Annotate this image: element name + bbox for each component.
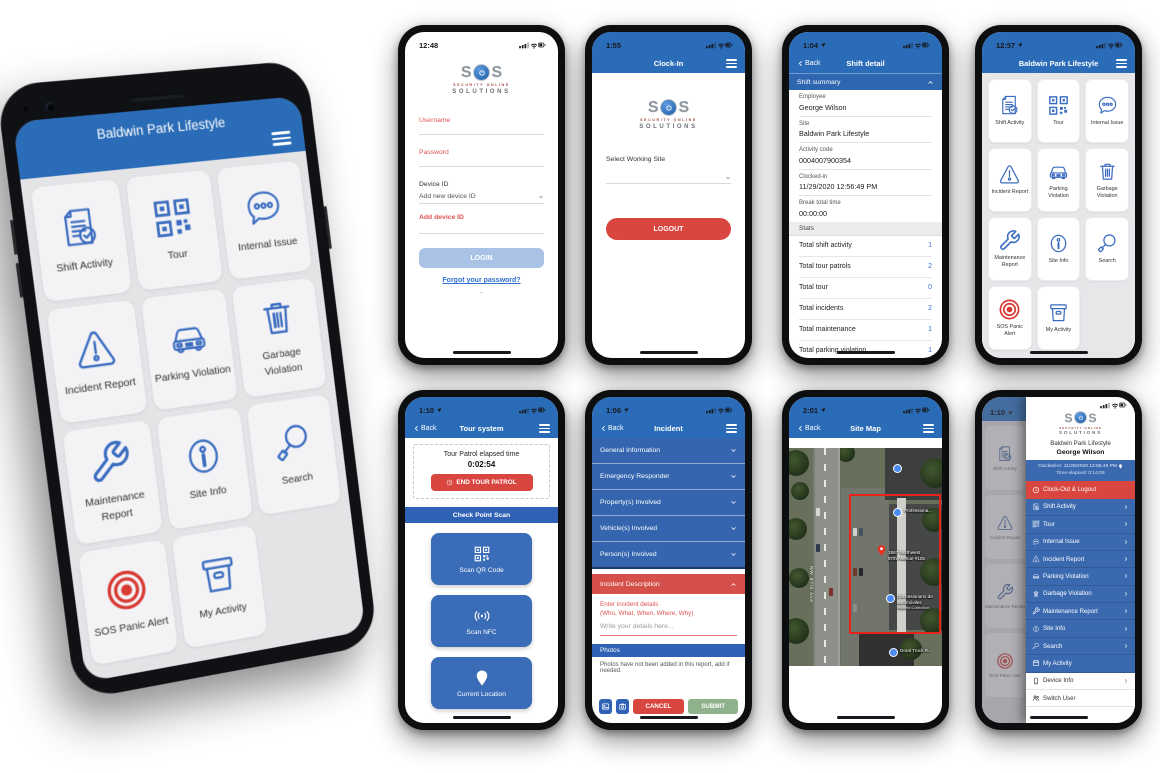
cancel-button[interactable]: CANCEL (633, 699, 685, 714)
section-label: Emergency Responder (600, 473, 670, 480)
chevron-down-icon (730, 473, 737, 480)
hero-phone-mockup: Baldwin Park Lifestyle Shift Activity To… (0, 60, 378, 701)
status-time: 12:57 (996, 41, 1023, 50)
nav-bar: Back Site Map (789, 419, 942, 438)
chevron-right-icon (1123, 608, 1129, 614)
status-time: 1:55 (606, 41, 621, 50)
panic-target-icon (102, 565, 151, 616)
menu-screen: 12:57 Baldwin Park Lifestyle Shift Activ… (982, 32, 1135, 358)
stat-row: Total tour patrols 2 (799, 257, 932, 278)
tour-phone-mockup: 1:10 Back Tour system Tour Patrol elapse… (398, 390, 565, 730)
poi-concesionario[interactable]: Concesionario de automóviles Imports Col… (886, 594, 942, 611)
status-icons (1100, 401, 1127, 409)
incident-accordion: General Information Emergency Responder … (592, 438, 745, 569)
status-time: 1:04 (803, 41, 826, 50)
password-field[interactable]: Password (419, 149, 544, 167)
drawer-item-site-info[interactable]: Site Info (1026, 620, 1135, 637)
incident-prompt: (Who, What, When, Where, Why) (600, 609, 737, 618)
home-indicator[interactable] (453, 716, 511, 720)
panic-target-icon (998, 298, 1021, 321)
chevron-right-icon (1123, 539, 1129, 545)
stat-label: Total tour (799, 284, 828, 291)
chevron-left-icon (797, 60, 804, 67)
power-button (324, 206, 332, 249)
field-label: Break total time (799, 200, 932, 206)
map-marker[interactable] (893, 464, 902, 473)
poi-label: Doral Truck R... (900, 648, 932, 654)
page-title: Baldwin Park Lifestyle (982, 59, 1135, 68)
poi-label: Professiona... (904, 508, 932, 514)
logo-tagline: SOLUTIONS (452, 89, 510, 95)
location-arrow-icon (820, 42, 826, 48)
back-button[interactable]: Back (600, 425, 624, 432)
chevron-right-icon (1123, 591, 1129, 597)
home-indicator[interactable] (1030, 716, 1088, 720)
logo-tagline: SOLUTIONS (639, 124, 697, 130)
menu-item-label: My Activity (195, 599, 252, 624)
trash-can-icon (254, 294, 301, 342)
field-value: Baldwin Park Lifestyle (799, 129, 932, 143)
logo-letter: S (1064, 412, 1072, 424)
drawer-item-search[interactable]: Search (1026, 638, 1135, 655)
drawer-item-device-info[interactable]: Device Info (1026, 673, 1135, 690)
drawer-item-parking-violation[interactable]: Parking Violation (1026, 568, 1135, 585)
page-canvas: Baldwin Park Lifestyle Shift Activity To… (0, 0, 1160, 773)
device-id-select[interactable]: Device ID Add new device ID (419, 181, 544, 204)
status-bar: 12:57 (982, 32, 1135, 54)
drawer-item-label: My Activity (1043, 660, 1072, 667)
current-location-label: Current Location (457, 691, 506, 698)
sitemap-phone-mockup: 2:01 Back Site Map (782, 390, 949, 730)
field-employee: Employee George Wilson (789, 90, 942, 117)
menu-item-maintenance-report[interactable]: Maintenance Report (62, 420, 162, 545)
poi-sublabel: Imports Collection (897, 605, 929, 610)
sos-logo: S S SECURITY ONLINE SOLUTIONS (592, 99, 745, 130)
stat-row: Total incidents 2 (799, 299, 932, 320)
magnifier-icon (270, 418, 316, 467)
section-label: Person(s) Involved (600, 551, 657, 558)
elapsed-label: Tour Patrol elapsed time (420, 451, 543, 458)
front-camera-icon (45, 102, 55, 112)
menu-item-label: Tour (163, 246, 192, 265)
chevron-left-icon (600, 425, 607, 432)
poi-marker-icon (889, 648, 898, 657)
trash-can-icon (1032, 590, 1040, 598)
chevron-up-icon (730, 581, 737, 588)
volume-button (16, 263, 24, 298)
menu-phone-mockup: 12:57 Baldwin Park Lifestyle Shift Activ… (975, 25, 1142, 365)
menu-item-label: Shift Activity (52, 255, 118, 278)
red-map-pin-icon (875, 544, 888, 557)
tour-elapsed-card: Tour Patrol elapsed time 0:02:54 END TOU… (413, 444, 550, 499)
menu-item-label: Tour (1051, 120, 1066, 127)
page-title: Clock-In (592, 59, 745, 68)
hamburger-menu-icon[interactable] (539, 424, 550, 432)
drawer-item-tour[interactable]: Tour (1026, 516, 1135, 533)
drawer-item-label: Garbage Violation (1043, 590, 1092, 597)
chevron-right-icon (1123, 573, 1129, 579)
menu-item-maintenance-report[interactable]: Maintenance Report (988, 217, 1032, 281)
field-value: 00:00:00 (799, 209, 932, 222)
menu-item-my-activity[interactable]: My Activity (171, 524, 268, 648)
section-label: General Information (600, 447, 660, 454)
stat-label: Total tour patrols (799, 263, 851, 270)
menu-item-my-activity[interactable]: My Activity (1037, 286, 1081, 350)
status-icons (706, 406, 733, 414)
qr-code-icon (473, 545, 491, 563)
drawer-item-my-activity[interactable]: My Activity (1026, 655, 1135, 672)
field-activity-code: Activity code 0004007900354 (789, 143, 942, 170)
details-textarea[interactable]: Write your details here... (600, 623, 737, 636)
menu-item-site-info[interactable]: Site Info (156, 407, 253, 530)
status-bar: 2:01 (789, 397, 942, 419)
checkpoint-scan-header: Check Point Scan (405, 507, 558, 523)
clock-out-logout-button[interactable]: Clock-Out & Logout (1026, 481, 1135, 499)
menu-item-label: Site Info (1047, 258, 1071, 265)
section-general-information[interactable]: General Information (592, 438, 745, 464)
menu-item-sos-panic-alert[interactable]: SOS Panic Alert (988, 286, 1032, 350)
hamburger-menu-icon[interactable] (726, 59, 737, 67)
menu-item-label: Shift Activity (993, 120, 1026, 127)
logout-button[interactable]: LOGOUT (606, 218, 731, 240)
car-icon (1032, 572, 1040, 580)
menu-item-tour[interactable]: Tour (1037, 79, 1081, 143)
chevron-left-icon (797, 425, 804, 432)
menu-item-label: Site Info (185, 482, 232, 504)
drawer-header: S S SECURITY ONLINE SOLUTIONS Baldwin Pa… (1026, 411, 1135, 456)
menu-item-shift-activity[interactable]: Shift Activity (988, 79, 1032, 143)
section-label: Vehicle(s) Involved (600, 525, 657, 532)
shift-detail-screen: 1:04 Back Shift detail Shift summary Emp… (789, 32, 942, 358)
chevron-right-icon (1123, 678, 1129, 684)
elapsed-time: 0:02:54 (420, 460, 543, 469)
menu-grid: Shift Activity Tour Internal Issue Incid… (20, 151, 365, 676)
menu-item-label: SOS Panic Alert (989, 324, 1031, 339)
menu-item-sos-panic-alert[interactable]: SOS Panic Alert (78, 539, 178, 665)
site-address: 1867 Northwest 97th Avenue #105 (888, 550, 925, 561)
stat-row: Total maintenance 1 (799, 320, 932, 341)
clocked-in-banner: Clocked-in: 11/29/2020 12:56:49 PM Time … (1026, 460, 1135, 481)
info-icon (1047, 232, 1070, 255)
scrim-overlay[interactable] (982, 397, 1028, 723)
device-id-label: Device ID (419, 181, 544, 188)
section-emergency-responder[interactable]: Emergency Responder (592, 464, 745, 490)
back-label: Back (805, 425, 821, 432)
end-tour-patrol-button[interactable]: END TOUR PATROL (431, 474, 533, 491)
back-label: Back (608, 425, 624, 432)
chevron-right-icon (1123, 556, 1129, 562)
calendar-icon (1032, 659, 1040, 667)
field-break-total: Break total time 00:00:00 (789, 196, 942, 222)
menu-item-label: Search (277, 469, 317, 490)
submit-button[interactable]: SUBMIT (688, 699, 738, 714)
status-time: 2:01 (803, 406, 826, 415)
nav-bar: Back Shift detail (789, 54, 942, 73)
chevron-right-icon (1123, 521, 1129, 527)
camera-button[interactable] (616, 699, 629, 714)
document-icon (1032, 503, 1040, 511)
gallery-button[interactable] (599, 699, 612, 714)
back-button[interactable]: Back (797, 425, 821, 432)
warning-triangle-icon (1032, 555, 1040, 563)
address-line: 1867 Northwest (888, 550, 920, 555)
status-bar: 1:10 (405, 397, 558, 419)
drawer-item-label: Parking Violation (1043, 573, 1089, 580)
shift-summary-label: Shift summary (797, 79, 840, 86)
wrench-icon (1032, 607, 1040, 615)
drawer-item-internal-issue[interactable]: Internal Issue (1026, 534, 1135, 551)
back-button[interactable]: Back (413, 425, 437, 432)
forgot-password-link[interactable]: Forgot your password? (405, 277, 558, 284)
status-bar: 1:04 (789, 32, 942, 54)
status-icons (519, 41, 546, 49)
field-site: Site Baldwin Park Lifestyle (789, 117, 942, 144)
section-person-involved[interactable]: Person(s) Involved (592, 542, 745, 569)
status-bar: 12:48 (405, 32, 558, 54)
wrench-icon (998, 229, 1021, 252)
sitemap-screen: 2:01 Back Site Map (789, 397, 942, 723)
menu-item-incident-report[interactable]: Incident Report (988, 148, 1032, 212)
back-button[interactable]: Back (797, 60, 821, 67)
logo-letter: S (461, 65, 472, 81)
status-time: 1:10 (419, 406, 442, 415)
status-time: 1:06 (606, 406, 629, 415)
scan-nfc-button[interactable]: Scan NFC (431, 595, 532, 647)
field-value: 0004007900354 (799, 156, 932, 170)
menu-item-parking-violation[interactable]: Parking Violation (1037, 148, 1081, 212)
drawer-item-label: Device Info (1043, 677, 1073, 684)
location-arrow-icon (436, 407, 442, 413)
menu-item-garbage-violation[interactable]: Garbage Violation (232, 278, 327, 398)
stat-value: 1 (928, 347, 932, 354)
stat-value: 2 (928, 305, 932, 312)
location-arrow-icon (623, 407, 629, 413)
stats-header: Stats (789, 222, 942, 236)
drawer-item-switch-user[interactable]: Switch User (1026, 690, 1135, 707)
tour-screen: 1:10 Back Tour system Tour Patrol elapse… (405, 397, 558, 723)
status-time-text: 1:10 (419, 406, 434, 415)
logo-letter: S (648, 100, 659, 116)
chevron-down-icon (730, 525, 737, 532)
menu-item-shift-activity[interactable]: Shift Activity (31, 179, 132, 302)
nav-bar: Baldwin Park Lifestyle (982, 54, 1135, 73)
camera-icon (618, 702, 627, 711)
power-icon (660, 99, 677, 116)
car-icon (1047, 160, 1070, 183)
power-icon (1074, 411, 1087, 424)
info-icon (1032, 625, 1040, 633)
chat-bubble-icon (240, 184, 287, 232)
menu-item-internal-issue[interactable]: Internal Issue (1085, 79, 1129, 143)
chevron-down-icon (730, 499, 737, 506)
drawer-item-label: Search (1043, 643, 1062, 650)
trash-can-icon (1096, 160, 1119, 183)
drawer-item-label: Internal Issue (1043, 538, 1080, 545)
field-label: Employee (799, 94, 932, 100)
menu-item-label: Incident Report (60, 374, 141, 401)
chat-bubble-icon (1096, 94, 1119, 117)
hamburger-menu-icon[interactable] (726, 424, 737, 432)
photos-note: Photos have not been added in this repor… (592, 657, 745, 674)
incident-prompt: Enter incident details (600, 600, 737, 609)
back-label: Back (805, 60, 821, 67)
archive-box-icon (1047, 301, 1070, 324)
working-site-select[interactable]: Select Working Site (606, 156, 731, 184)
status-bar: 1:06 (592, 397, 745, 419)
field-value: George Wilson (799, 103, 932, 117)
earpiece-speaker (130, 92, 185, 102)
dash-text: - (405, 290, 558, 297)
scan-qr-button[interactable]: Scan QR Code (431, 533, 532, 585)
stat-value: 2 (928, 263, 932, 270)
menu-item-internal-issue[interactable]: Internal Issue (217, 161, 312, 280)
satellite-map[interactable]: NW 97th Ave Professiona... 1867 Northwes… (789, 448, 942, 666)
stat-value: 1 (928, 326, 932, 333)
section-property-involved[interactable]: Property(s) Involved (592, 490, 745, 516)
sos-logo: S S SECURITY ONLINE SOLUTIONS (405, 64, 558, 95)
stat-value: 0 (928, 284, 932, 291)
chevron-down-icon (725, 175, 731, 181)
home-indicator[interactable] (1030, 351, 1088, 355)
section-vehicle-involved[interactable]: Vehicle(s) Involved (592, 516, 745, 542)
chevron-right-icon (1123, 643, 1129, 649)
home-indicator[interactable] (640, 716, 698, 720)
login-screen: 12:48 S S SECURITY ONLINE SOLUTIONS User… (405, 32, 558, 358)
drawer-item-label: Site Info (1043, 625, 1065, 632)
status-time: 12:48 (419, 41, 438, 50)
username-field[interactable]: Username (419, 117, 544, 135)
field-value: 11/29/2020 12:56:49 PM (799, 182, 932, 196)
time-elapsed-text: Time elapsed: 0:14:09 (1028, 470, 1133, 477)
menu-item-label: Incident Report (990, 189, 1031, 196)
hamburger-menu-icon[interactable] (1116, 59, 1127, 67)
clock-icon (1032, 486, 1040, 494)
field-clocked-in: Clocked-in 11/29/2020 12:56:49 PM (789, 170, 942, 197)
nfc-icon (473, 607, 491, 625)
incident-screen: 1:06 Back Incident General Information (592, 397, 745, 723)
menu-item-parking-violation[interactable]: Parking Violation (141, 288, 239, 410)
menu-item-garbage-violation[interactable]: Garbage Violation (1085, 148, 1129, 212)
stat-row: Total parking violation 1 (799, 341, 932, 359)
menu-item-label: Garbage Violation (1086, 186, 1128, 201)
home-menu-screen: Baldwin Park Lifestyle Shift Activity To… (13, 96, 366, 682)
map-pin-icon (473, 669, 491, 687)
map-pin-icon (1118, 464, 1123, 469)
clockin-phone-mockup: 1:55 Clock-In S S SECURITY ONLINE SOLUTI… (585, 25, 752, 365)
qr-code-icon (149, 194, 197, 243)
password-label: Password (419, 149, 544, 156)
menu-item-label: Maintenance Report (71, 486, 161, 531)
field-label: Site (799, 121, 932, 127)
drawer-screen: 1:10 Shift Activity Incident Report Main… (982, 397, 1135, 723)
end-tour-label: END TOUR PATROL (456, 479, 516, 486)
section-label: Incident Description (600, 581, 660, 588)
home-indicator[interactable] (837, 716, 895, 720)
volume-button (10, 220, 18, 255)
username-label: Username (419, 117, 544, 124)
menu-item-label: SOS Panic Alert (90, 613, 174, 643)
chevron-down-icon (730, 447, 737, 454)
logo-letter: S (679, 100, 690, 116)
menu-item-label: Parking Violation (1038, 186, 1080, 201)
menu-item-label: Internal Issue (1089, 120, 1125, 127)
menu-item-incident-report[interactable]: Incident Report (47, 300, 148, 424)
image-icon (601, 702, 610, 711)
drawer-item-incident-report[interactable]: Incident Report (1026, 551, 1135, 568)
section-incident-description[interactable]: Incident Description (592, 574, 745, 594)
drawer-item-label: Switch User (1043, 695, 1076, 702)
status-time-text: 1:04 (803, 41, 818, 50)
add-device-link[interactable]: Add device ID (419, 214, 544, 221)
menu-item-search[interactable]: Search (1085, 217, 1129, 281)
poi-professional[interactable]: Professiona... (893, 508, 932, 517)
home-indicator[interactable] (837, 351, 895, 355)
clockin-screen: 1:55 Clock-In S S SECURITY ONLINE SOLUTI… (592, 32, 745, 358)
menu-item-tour[interactable]: Tour (125, 170, 223, 291)
menu-item-label: Search (1097, 258, 1118, 265)
home-indicator[interactable] (453, 351, 511, 355)
shift-summary-header[interactable]: Shift summary (789, 73, 942, 90)
home-indicator[interactable] (640, 351, 698, 355)
drawer-item-maintenance-report[interactable]: Maintenance Report (1026, 603, 1135, 620)
chevron-right-icon (1123, 626, 1129, 632)
logo-tagline: SECURITY ONLINE (640, 119, 697, 123)
poi-marker-icon (893, 508, 902, 517)
drawer-item-shift-activity[interactable]: Shift Activity (1026, 499, 1135, 516)
navigation-drawer: S S SECURITY ONLINE SOLUTIONS Baldwin Pa… (1026, 397, 1135, 723)
poi-label: Concesionario de automóviles (897, 594, 933, 605)
hamburger-menu-icon[interactable] (923, 424, 934, 432)
add-device-link-row: Add device ID (419, 214, 544, 234)
drawer-item-label: Maintenance Report (1043, 608, 1098, 615)
poi-doral-truck[interactable]: Doral Truck R... (889, 648, 932, 657)
incident-description-body: Enter incident details (Who, What, When,… (592, 594, 745, 636)
back-label: Back (421, 425, 437, 432)
login-button[interactable]: LOGIN (419, 248, 544, 268)
users-icon (1032, 694, 1040, 702)
menu-item-search[interactable]: Search (247, 394, 341, 515)
wrench-icon (86, 437, 135, 488)
status-icons (1096, 41, 1123, 49)
hamburger-menu-icon[interactable] (271, 131, 291, 146)
select-site-label: Select Working Site (606, 156, 731, 163)
chevron-up-icon (927, 79, 934, 86)
clocked-in-text: Clocked-in: 11/29/2020 12:56:49 PM (1038, 463, 1117, 470)
phone-icon (1032, 677, 1040, 685)
nav-bar: Back Incident (592, 419, 745, 438)
login-phone-mockup: 12:48 S S SECURITY ONLINE SOLUTIONS User… (398, 25, 565, 365)
nav-bar: Back Tour system (405, 419, 558, 438)
nav-bar: Clock-In (592, 54, 745, 73)
menu-item-label: Parking Violation (150, 362, 235, 389)
power-icon (473, 64, 490, 81)
menu-item-site-info[interactable]: Site Info (1037, 217, 1081, 281)
stat-value: 1 (928, 242, 932, 249)
menu-item-label: Maintenance Report (989, 255, 1031, 270)
chevron-left-icon (413, 425, 420, 432)
front-camera-icon (23, 106, 29, 112)
drawer-user-name: George Wilson (1057, 449, 1105, 456)
status-time-text: 12:57 (996, 41, 1015, 50)
clock-out-label: Clock-Out & Logout (1043, 486, 1096, 493)
drawer-item-garbage-violation[interactable]: Garbage Violation (1026, 586, 1135, 603)
sos-logo: S S SECURITY ONLINE SOLUTIONS (1059, 411, 1102, 436)
menu-grid: Shift Activity Tour Internal Issue Incid… (982, 73, 1135, 358)
archive-box-icon (195, 549, 242, 599)
status-bar: 1:55 (592, 32, 745, 54)
info-icon (180, 431, 228, 481)
current-location-button[interactable]: Current Location (431, 657, 532, 709)
